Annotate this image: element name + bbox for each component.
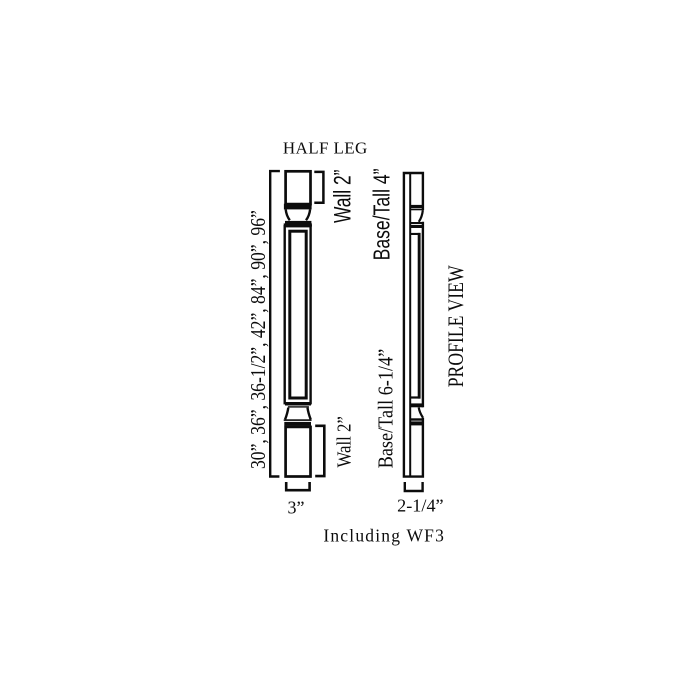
svg-text:HALF LEG: HALF LEG — [283, 139, 368, 158]
svg-text:3”: 3” — [288, 498, 305, 518]
svg-text:PROFILE VIEW: PROFILE VIEW — [444, 265, 468, 387]
svg-text:Including WF3: Including WF3 — [323, 526, 445, 546]
svg-text:2-1/4”: 2-1/4” — [397, 496, 443, 516]
svg-text:Base/Tall 4”: Base/Tall 4” — [370, 168, 395, 260]
svg-text:Wall 2”: Wall 2” — [333, 416, 356, 467]
svg-text:Wall 2”: Wall 2” — [330, 169, 356, 223]
svg-text:30”, 36”, 36-1/2”, 42”, 84”, 9: 30”, 36”, 36-1/2”, 42”, 84”, 90”, 96” — [248, 210, 271, 469]
svg-text:Base/Tall 6-1/4”: Base/Tall 6-1/4” — [375, 349, 397, 469]
